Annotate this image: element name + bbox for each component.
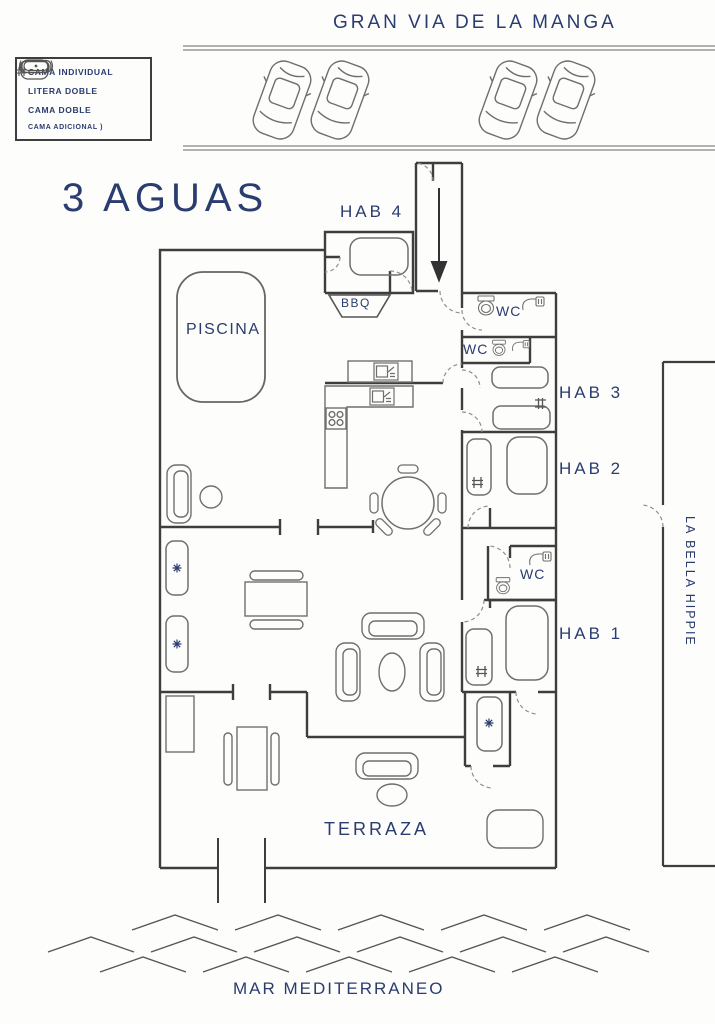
sofa xyxy=(167,465,191,523)
extra-bed-icon xyxy=(17,59,55,73)
page-title: 3 AGUAS xyxy=(62,176,268,221)
legend-item: CAMA ADICIONAL ) xyxy=(23,119,150,135)
sofa xyxy=(356,753,418,779)
bench xyxy=(250,620,303,629)
room-label-hab1: HAB 1 xyxy=(559,624,623,644)
street-name-top: GRAN VIA DE LA MANGA xyxy=(333,12,617,34)
side-table xyxy=(200,486,222,508)
shower-icon xyxy=(513,341,530,351)
dining-table xyxy=(245,582,307,616)
neighbor-name: LA BELLA HIPPIE xyxy=(683,516,697,647)
sea-waves xyxy=(48,915,649,972)
room-label-terraza: TERRAZA xyxy=(324,819,429,840)
legend-item-label: LITERA DOBLE xyxy=(28,86,98,96)
shower-icon xyxy=(530,552,551,565)
room-label-piscina: PISCINA xyxy=(186,321,261,339)
bunk-bed xyxy=(467,439,491,495)
sofa xyxy=(336,643,360,701)
sofa xyxy=(362,613,424,639)
legend-item: LITERA DOBLE xyxy=(23,81,150,100)
coffee-table xyxy=(379,653,405,691)
car-icon xyxy=(304,56,377,145)
chair xyxy=(438,493,446,513)
parked-cars xyxy=(246,56,603,145)
floor-plan-page: CAMA INDIVIDUAL LITERA DOBLE CAMA DOBLE … xyxy=(0,0,715,1024)
bench xyxy=(224,733,232,785)
double-bed xyxy=(507,437,547,494)
toilet-icon xyxy=(496,578,510,594)
terrace-table xyxy=(237,727,267,790)
room-label-hab3: HAB 3 xyxy=(559,383,623,403)
double-bed xyxy=(350,238,408,275)
bunk-ladder-icon xyxy=(476,666,487,677)
sink-icon xyxy=(374,363,398,380)
room-label-wc-top: WC xyxy=(496,303,521,319)
bunk-bed xyxy=(493,406,550,429)
chair xyxy=(370,493,378,513)
round-dining-table xyxy=(370,465,446,537)
sea-name: MAR MEDITERRANEO xyxy=(233,979,444,999)
outdoor-table xyxy=(487,810,543,848)
chair xyxy=(374,517,394,537)
room-label-hab2: HAB 2 xyxy=(559,459,623,479)
coffee-table xyxy=(377,784,407,806)
room-label-hab4: HAB 4 xyxy=(340,202,404,222)
legend-item-label: CAMA DOBLE xyxy=(28,105,91,115)
extra-bed-asterisk-icon xyxy=(173,564,182,573)
room-label-bbq: BBQ xyxy=(341,296,371,310)
bench xyxy=(250,571,303,580)
extra-bed-asterisk-icon xyxy=(485,719,494,728)
sofa xyxy=(420,643,444,701)
car-icon xyxy=(472,56,545,145)
entry-arrow xyxy=(432,188,446,280)
chair xyxy=(422,517,442,537)
double-bed xyxy=(506,606,548,680)
car-icon xyxy=(246,56,319,145)
toilet-icon xyxy=(478,296,494,315)
chair xyxy=(398,465,418,473)
bunk-bed xyxy=(466,629,492,685)
sunbed xyxy=(166,696,194,752)
legend: CAMA INDIVIDUAL LITERA DOBLE CAMA DOBLE … xyxy=(15,57,152,141)
room-label-wc-lower: WC xyxy=(520,566,545,582)
car-icon xyxy=(530,56,603,145)
bunk-ladder-icon xyxy=(472,477,483,488)
room-label-wc-mid: WC xyxy=(463,341,488,357)
legend-item-label: CAMA ADICIONAL ) xyxy=(28,124,103,131)
sink-icon xyxy=(370,388,394,405)
toilet-icon xyxy=(493,340,506,355)
bench xyxy=(271,733,279,785)
single-bed xyxy=(492,367,548,388)
path-to-sea xyxy=(218,838,265,903)
floor-plan-drawing xyxy=(0,0,715,1024)
extra-bed-asterisk-icon xyxy=(173,640,182,649)
shower-icon xyxy=(523,297,544,310)
bunk-ladder-icon xyxy=(535,398,546,409)
legend-item: CAMA DOBLE xyxy=(23,100,150,119)
